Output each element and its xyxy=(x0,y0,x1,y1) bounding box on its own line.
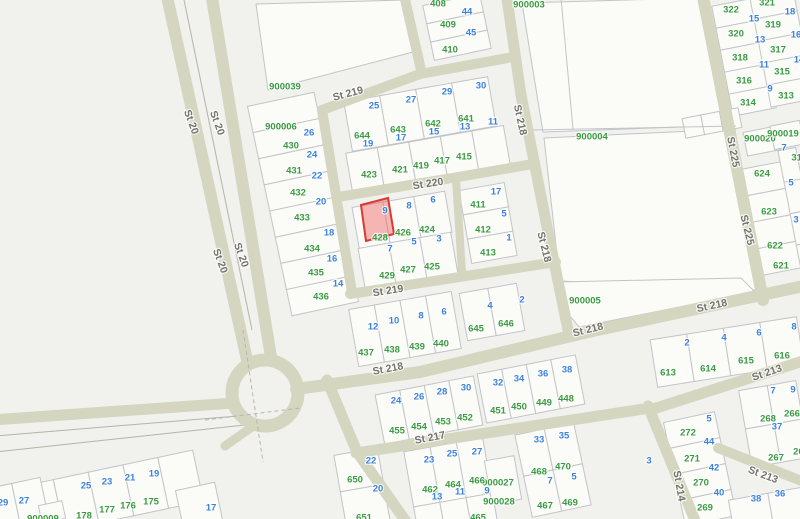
parcel-number-label: 178 xyxy=(76,511,92,519)
roundabout-island xyxy=(240,368,291,419)
address-number-label: 12 xyxy=(368,322,379,333)
parcel-number-label: 645 xyxy=(468,324,485,335)
address-number-label: 5 xyxy=(788,178,794,189)
address-number-label: 6 xyxy=(430,195,435,206)
address-number-label: 7 xyxy=(770,386,775,397)
parcel-number-label: 651 xyxy=(356,513,373,519)
parcel-number-label: 175 xyxy=(143,497,160,508)
address-number-label: 14 xyxy=(333,279,344,290)
parcel-number-label: 450 xyxy=(511,402,527,413)
parcel-number-label: 900019 xyxy=(767,129,799,140)
parcel-number-label: 410 xyxy=(442,45,458,56)
address-number-label: 34 xyxy=(514,374,525,385)
address-number-label: 1 xyxy=(506,233,512,244)
address-number-label: 4 xyxy=(721,333,727,344)
address-number-label: 44 xyxy=(462,7,473,18)
parcel-number-label: 434 xyxy=(304,244,321,255)
parcel-number-label: 451 xyxy=(490,406,507,417)
address-number-label: 7 xyxy=(547,476,552,487)
parcel-number-label: 468 xyxy=(531,467,547,478)
address-number-label: 5 xyxy=(411,237,417,248)
address-number-label: 7 xyxy=(781,143,786,154)
parcel-number-label: 176 xyxy=(120,501,136,512)
parcel-number-label: 408 xyxy=(430,0,446,10)
address-number-label: 10 xyxy=(389,316,400,327)
parcel-number-label: 271 xyxy=(684,454,701,465)
parcel-number-label: 453 xyxy=(435,417,451,428)
address-number-label: 19 xyxy=(149,469,160,480)
address-number-label: 20 xyxy=(316,197,327,208)
parcel-number-label: 439 xyxy=(409,342,425,353)
parcel-number-label: 266 xyxy=(784,409,800,420)
parcel-number-label: 455 xyxy=(389,426,406,437)
address-number-label: 26 xyxy=(304,128,315,139)
address-number-label: 8 xyxy=(406,201,411,212)
parcel-number-label: 413 xyxy=(480,248,496,259)
address-number-label: 27 xyxy=(406,95,417,106)
cadastral-map-canvas[interactable]: 9000399000039000069000049000059000209000… xyxy=(0,0,800,519)
address-number-label: 16 xyxy=(791,30,800,41)
address-number-label: 17 xyxy=(491,187,502,198)
parcel-number-label: 265 xyxy=(793,447,800,458)
parcel-number-label: 900005 xyxy=(569,296,601,307)
address-number-label: 32 xyxy=(493,378,504,389)
address-number-label: 15 xyxy=(429,127,440,138)
address-number-label: 22 xyxy=(366,456,377,467)
parcel-number-label: 448 xyxy=(558,394,574,405)
address-number-label: 15 xyxy=(749,14,760,25)
address-number-label: 9 xyxy=(382,206,387,217)
parcel-number-label: 318 xyxy=(732,53,748,64)
address-number-label: 29 xyxy=(0,498,8,509)
parcel-number-label: 900039 xyxy=(269,82,301,93)
address-number-label: 44 xyxy=(704,437,715,448)
parcel-number-label: 412 xyxy=(475,225,491,236)
address-number-label: 37 xyxy=(772,422,783,433)
address-number-label: 11 xyxy=(488,117,499,128)
address-number-label: 18 xyxy=(324,228,335,239)
parcel-number-label: 449 xyxy=(536,398,552,409)
parcel-number-label: 409 xyxy=(440,20,456,31)
address-number-label: 8 xyxy=(791,322,796,333)
parcel-number-label: 423 xyxy=(361,170,377,181)
address-number-label: 28 xyxy=(437,387,448,398)
address-number-label: 17 xyxy=(396,133,407,144)
address-number-label: 5 xyxy=(706,414,712,425)
address-number-label: 13 xyxy=(460,122,471,133)
parcel-number-label: 431 xyxy=(286,166,303,177)
parcel-number-label: 616 xyxy=(774,351,790,362)
parcel-number-label: 470 xyxy=(555,462,571,473)
address-number-label: 13 xyxy=(755,35,766,46)
parcel-number-label: 437 xyxy=(358,348,374,359)
parcel-number-label: 614 xyxy=(700,364,717,375)
address-number-label: 5 xyxy=(571,472,577,483)
address-number-label: 11 xyxy=(759,60,770,71)
parcel-number-label: 415 xyxy=(456,152,473,163)
parcel-number-label: 424 xyxy=(419,225,436,236)
address-number-label: 11 xyxy=(455,487,466,498)
parcel-900004[interactable] xyxy=(544,129,756,290)
address-number-label: 25 xyxy=(81,481,92,492)
parcel-number-label: 267 xyxy=(768,453,784,464)
address-number-label: 9 xyxy=(767,84,772,95)
address-number-label: 6 xyxy=(756,328,761,339)
address-number-label: 30 xyxy=(476,81,487,92)
parcel-number-label: 322 xyxy=(723,5,739,16)
parcel-number-label: 313 xyxy=(778,91,794,102)
parcel-number-label: 428 xyxy=(372,233,388,244)
parcel-number-label: 622 xyxy=(767,241,783,252)
parcel-number-label: 433 xyxy=(294,213,310,224)
address-number-label: 30 xyxy=(461,383,472,394)
parcel-number-label: 421 xyxy=(392,165,409,176)
address-number-label: 36 xyxy=(775,489,786,500)
address-number-label: 26 xyxy=(414,392,425,403)
parcel-number-label: 454 xyxy=(411,422,428,433)
parcel-number-label: 465 xyxy=(470,513,487,519)
address-number-label: 6 xyxy=(441,307,446,318)
map-viewport[interactable]: 9000399000039000069000049000059000209000… xyxy=(0,0,800,519)
parcel-number-label: 646 xyxy=(498,319,514,330)
parcel-number-label: 177 xyxy=(99,505,115,516)
address-number-label: 13 xyxy=(432,492,443,503)
address-number-label: 33 xyxy=(534,435,545,446)
parcel-number-label: 467 xyxy=(537,501,553,512)
parcel-number-label: 436 xyxy=(313,292,329,303)
address-number-label: 5 xyxy=(501,209,507,220)
address-number-label: 38 xyxy=(562,365,573,376)
address-number-label: 2 xyxy=(684,338,689,349)
parcel-number-label: 320 xyxy=(728,29,744,40)
address-number-label: 19 xyxy=(363,139,374,150)
parcel-number-label: 314 xyxy=(740,98,757,109)
parcel-number-label: 435 xyxy=(308,268,325,279)
parcel-number-label: 615 xyxy=(738,356,755,367)
parcel-number-label: 900004 xyxy=(576,132,608,143)
address-number-label: 22 xyxy=(312,171,323,182)
address-number-label: 14 xyxy=(794,55,800,66)
address-number-label: 16 xyxy=(327,254,338,265)
parcel-number-label: 432 xyxy=(290,188,306,199)
parcel-number-label: 419 xyxy=(413,161,429,172)
address-number-label: 27 xyxy=(472,447,483,458)
parcel-number-label: 621 xyxy=(773,261,790,272)
address-number-label: 27 xyxy=(19,496,30,507)
parcel-number-label: 613 xyxy=(660,368,676,379)
parcel-number-label: 452 xyxy=(457,413,473,424)
parcel-number-label: 315 xyxy=(774,67,791,78)
parcel-number-label: 624 xyxy=(754,169,771,180)
address-number-label: 2 xyxy=(519,295,524,306)
address-number-label: 45 xyxy=(466,28,477,39)
block-423-row-cell[interactable] xyxy=(472,125,510,170)
address-number-label: 36 xyxy=(538,369,549,380)
parcel-number-label: 438 xyxy=(384,345,400,356)
parcel-number-label: 469 xyxy=(562,498,578,509)
parcel-number-label: 900003 xyxy=(513,0,545,11)
parcel-number-label: 900009 xyxy=(27,514,59,519)
address-number-label: 3 xyxy=(793,215,798,226)
parcel-number-label: 466 xyxy=(469,476,485,487)
parcel-number-label: 426 xyxy=(395,228,411,239)
address-number-label: 18 xyxy=(785,7,796,18)
parcel-number-label: 317 xyxy=(770,45,786,56)
parcel-number-label: 440 xyxy=(433,339,449,350)
address-number-label: 8 xyxy=(418,311,423,322)
parcel-number-label: 311 xyxy=(791,153,800,164)
parcel-number-label: 411 xyxy=(470,200,486,211)
parcel-number-label: 430 xyxy=(283,141,299,152)
parcel-number-label: 429 xyxy=(379,271,395,282)
parcel-number-label: 623 xyxy=(761,207,777,218)
parcel-number-label: 650 xyxy=(347,475,363,486)
address-number-label: 29 xyxy=(442,87,453,98)
parcel-number-label: 900006 xyxy=(265,122,297,133)
parcel-number-label: 269 xyxy=(697,503,713,514)
address-number-label: 21 xyxy=(125,473,136,484)
address-number-label: 23 xyxy=(102,477,113,488)
address-number-label: 25 xyxy=(369,101,380,112)
address-number-label: 23 xyxy=(424,455,435,466)
address-number-label: 7 xyxy=(387,244,392,255)
address-number-label: 4 xyxy=(487,301,493,312)
parcel-number-label: 417 xyxy=(434,156,450,167)
address-number-label: 38 xyxy=(751,494,762,505)
address-number-label: 35 xyxy=(559,431,570,442)
address-number-label: 25 xyxy=(447,449,458,460)
parcel-number-label: 321 xyxy=(759,0,776,9)
address-number-label: 17 xyxy=(206,503,217,514)
parcel-number-label: 900028 xyxy=(483,497,515,508)
parcel-number-label: 272 xyxy=(680,428,696,439)
parcel-number-label: 425 xyxy=(424,262,441,273)
address-number-label: 24 xyxy=(307,150,318,161)
address-number-label: 42 xyxy=(709,463,720,474)
parcel-number-label: 319 xyxy=(765,20,781,31)
parcel-number-label: 316 xyxy=(736,76,752,87)
parcel-number-label: 427 xyxy=(400,265,416,276)
address-number-label: 24 xyxy=(391,396,402,407)
address-number-label: 3 xyxy=(646,456,651,467)
address-number-label: 3 xyxy=(436,234,441,245)
address-number-label: 9 xyxy=(484,486,489,497)
address-number-label: 9 xyxy=(790,385,795,396)
address-number-label: 20 xyxy=(373,484,384,495)
address-number-label: 40 xyxy=(714,488,725,499)
parcel-number-label: 270 xyxy=(693,478,709,489)
